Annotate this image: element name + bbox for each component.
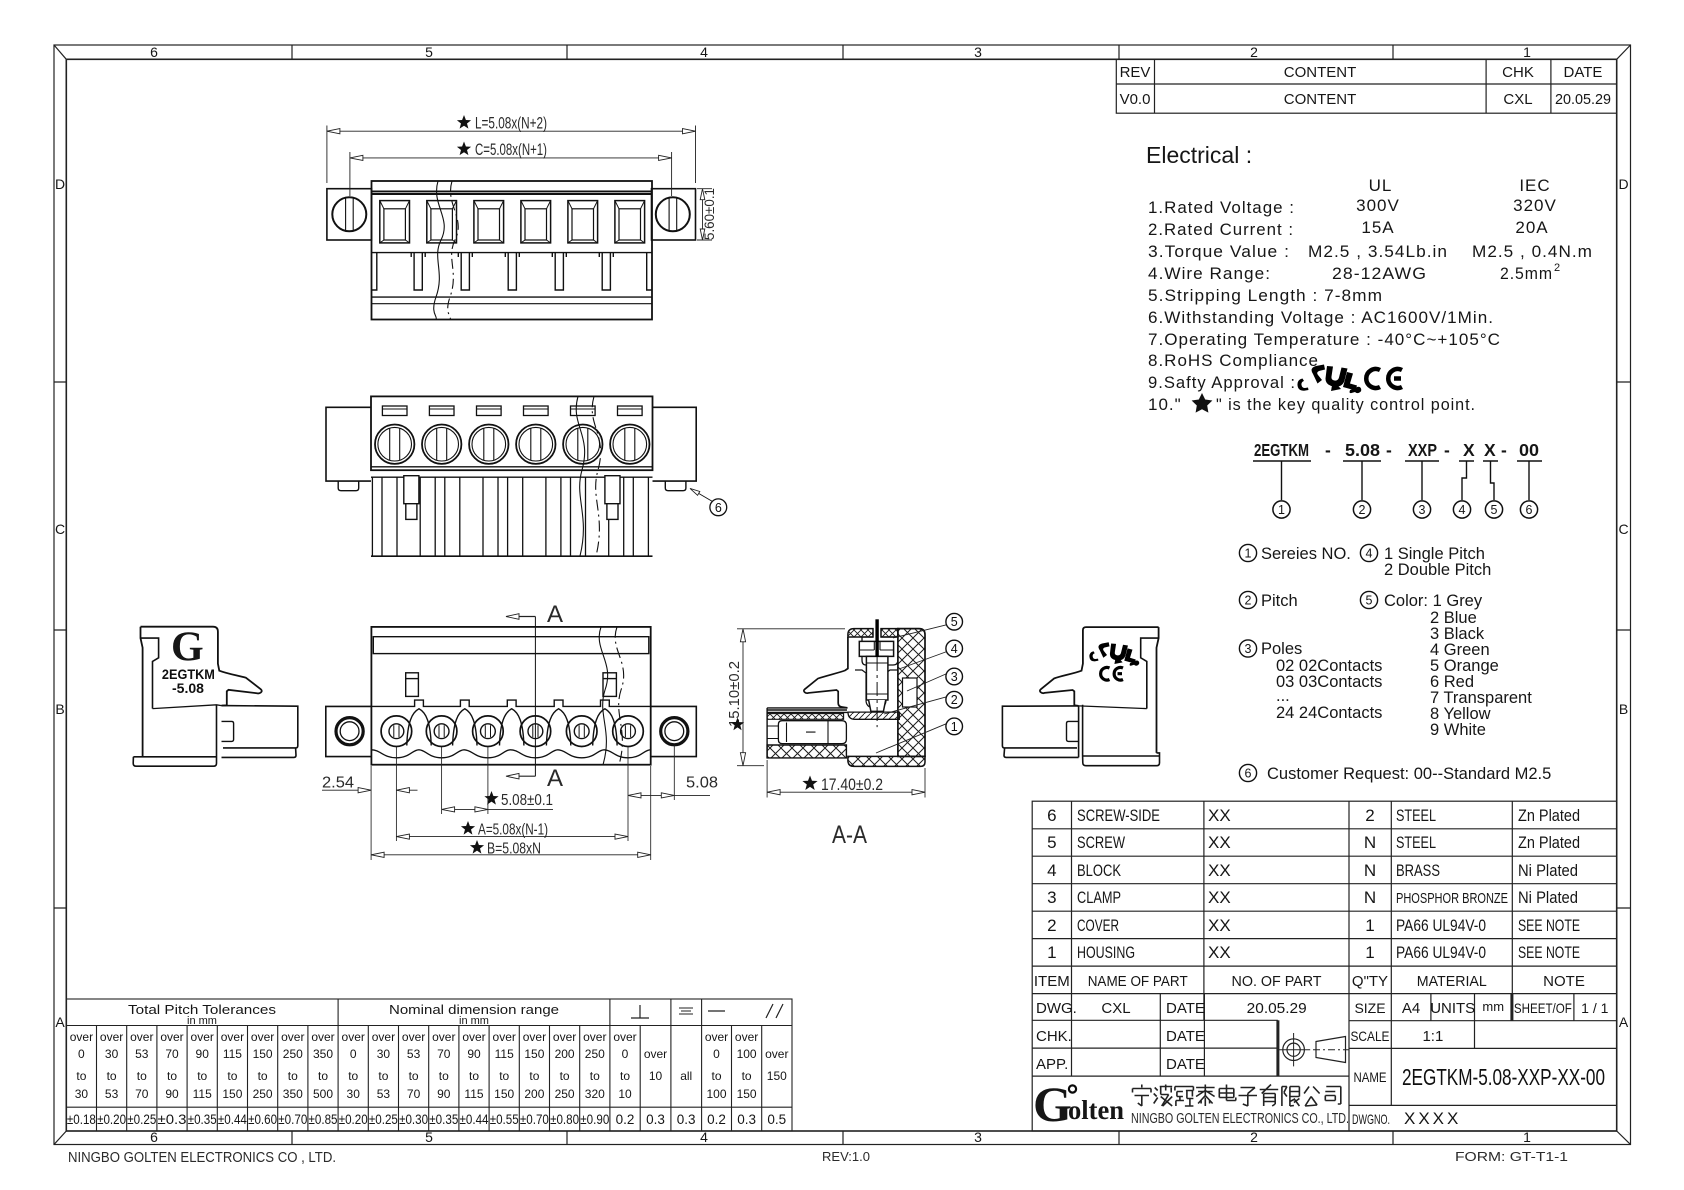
svg-text:over: over	[221, 1030, 244, 1044]
svg-text:NOTE: NOTE	[1543, 973, 1585, 990]
svg-text:320V: 320V	[1513, 196, 1557, 215]
svg-text:5: 5	[951, 615, 958, 629]
svg-text:PA66 UL94V-0: PA66 UL94V-0	[1396, 916, 1486, 935]
svg-text:over: over	[523, 1030, 546, 1044]
svg-text:mm: mm	[1482, 999, 1504, 1014]
svg-text:G: G	[1033, 1076, 1072, 1132]
svg-text:over: over	[130, 1030, 153, 1044]
svg-text:C: C	[55, 521, 65, 537]
svg-text:DWG.: DWG.	[1036, 1000, 1077, 1017]
svg-text:CLAMP: CLAMP	[1077, 888, 1121, 907]
svg-text:150: 150	[253, 1047, 273, 1061]
svg-text:150: 150	[494, 1087, 514, 1101]
svg-text:B: B	[55, 701, 64, 717]
svg-text:over: over	[583, 1030, 606, 1044]
svg-text:15A: 15A	[1361, 218, 1394, 237]
svg-text:2: 2	[1359, 503, 1366, 517]
svg-text:DWGNO.: DWGNO.	[1352, 1111, 1390, 1127]
svg-text:1: 1	[1365, 943, 1374, 962]
svg-text:to: to	[529, 1069, 539, 1083]
svg-text:C: C	[1618, 521, 1628, 537]
svg-text:±0.3: ±0.3	[158, 1112, 187, 1127]
svg-text:over: over	[342, 1030, 365, 1044]
svg-text:250: 250	[283, 1047, 303, 1061]
svg-text:10: 10	[649, 1069, 663, 1083]
svg-text:53: 53	[377, 1087, 391, 1101]
svg-text:0.5: 0.5	[767, 1112, 786, 1127]
svg-text:3: 3	[1245, 642, 1252, 656]
svg-text:200: 200	[555, 1047, 575, 1061]
svg-text:1: 1	[1523, 44, 1531, 60]
svg-text:XX: XX	[1208, 916, 1231, 935]
svg-text:X: X	[1463, 440, 1475, 460]
svg-text:5: 5	[1366, 594, 1373, 608]
svg-text:0: 0	[713, 1047, 720, 1061]
svg-text:±0.85: ±0.85	[309, 1112, 338, 1127]
svg-text:A=5.08x(N-1): A=5.08x(N-1)	[478, 822, 548, 839]
svg-text:over: over	[100, 1030, 123, 1044]
svg-text:-5.08: -5.08	[172, 681, 205, 696]
svg-text:NAME OF PART: NAME OF PART	[1088, 973, 1188, 990]
svg-text:Q"TY: Q"TY	[1352, 973, 1388, 990]
svg-text:XX: XX	[1208, 806, 1231, 825]
svg-text:4: 4	[1366, 547, 1373, 561]
svg-text:6: 6	[1245, 767, 1252, 781]
svg-text:CONTENT: CONTENT	[1284, 64, 1357, 81]
svg-text:over: over	[553, 1030, 576, 1044]
svg-text:±0.44: ±0.44	[460, 1112, 489, 1127]
svg-text:100: 100	[706, 1087, 726, 1101]
svg-text:0.3: 0.3	[737, 1112, 756, 1127]
svg-text:-: -	[1501, 440, 1507, 460]
svg-text:-: -	[1325, 440, 1331, 460]
svg-text:1: 1	[1365, 916, 1374, 935]
svg-text:2EGTKM-5.08-XXP-XX-00: 2EGTKM-5.08-XXP-XX-00	[1402, 1064, 1605, 1090]
svg-text:XX: XX	[1208, 833, 1231, 852]
svg-text:28-12AWG: 28-12AWG	[1332, 264, 1427, 283]
svg-text:SEE NOTE: SEE NOTE	[1518, 943, 1580, 962]
svg-text:M2.5 , 3.54Lb.in: M2.5 , 3.54Lb.in	[1308, 242, 1448, 261]
svg-text:SCREW: SCREW	[1077, 833, 1125, 852]
svg-text:±0.60: ±0.60	[248, 1112, 277, 1127]
svg-text:0.3: 0.3	[646, 1112, 665, 1127]
svg-text:±0.35: ±0.35	[429, 1112, 458, 1127]
svg-text:BLOCK: BLOCK	[1077, 861, 1121, 880]
svg-text:±0.80: ±0.80	[550, 1112, 579, 1127]
svg-text:3: 3	[974, 44, 982, 60]
svg-text:20A: 20A	[1515, 218, 1548, 237]
svg-text:to: to	[227, 1069, 237, 1083]
svg-text:5: 5	[1491, 503, 1498, 517]
svg-text:to: to	[742, 1069, 752, 1083]
svg-text:5: 5	[1047, 833, 1056, 852]
svg-text:NINGBO GOLTEN ELECTRONICS CO ,: NINGBO GOLTEN ELECTRONICS CO , LTD.	[68, 1149, 336, 1166]
svg-text:90: 90	[196, 1047, 210, 1061]
svg-text:0: 0	[350, 1047, 357, 1061]
svg-text:4: 4	[951, 642, 958, 656]
svg-text:Customer Request: 00--Standard: Customer Request: 00--Standard M2.5	[1267, 765, 1551, 783]
svg-text:24 24Contacts: 24 24Contacts	[1276, 704, 1382, 722]
svg-text:COVER: COVER	[1077, 916, 1119, 935]
svg-text:N: N	[1364, 861, 1376, 880]
svg-text:to: to	[560, 1069, 570, 1083]
svg-text:2: 2	[1554, 262, 1561, 274]
svg-text:150: 150	[222, 1087, 242, 1101]
svg-text:over: over	[432, 1030, 455, 1044]
svg-text:PA66 UL94V-0: PA66 UL94V-0	[1396, 943, 1486, 962]
svg-text:70: 70	[437, 1047, 451, 1061]
svg-text:XX: XX	[1208, 888, 1231, 907]
svg-text:6: 6	[150, 44, 158, 60]
svg-text:115: 115	[495, 1047, 514, 1061]
svg-text:D: D	[55, 176, 65, 192]
svg-text:STEEL: STEEL	[1396, 806, 1436, 825]
svg-text:115: 115	[193, 1087, 212, 1101]
svg-text:APP.: APP.	[1036, 1056, 1068, 1073]
svg-text:3: 3	[1419, 503, 1426, 517]
svg-text:B: B	[1619, 701, 1628, 717]
svg-text:9.Safty Approval :: 9.Safty Approval :	[1148, 373, 1296, 392]
svg-text:2.54: 2.54	[322, 775, 354, 792]
svg-text:CHK.: CHK.	[1036, 1028, 1072, 1045]
svg-text:-: -	[1386, 440, 1392, 460]
svg-text:350: 350	[283, 1087, 303, 1101]
svg-text:to: to	[620, 1069, 630, 1083]
svg-text:30: 30	[75, 1087, 89, 1101]
svg-text:6.Withstanding Voltage : AC160: 6.Withstanding Voltage : AC1600V/1Min.	[1148, 308, 1494, 327]
svg-text:V0.0: V0.0	[1120, 91, 1151, 108]
svg-text:300V: 300V	[1356, 196, 1400, 215]
svg-text:20.05.29: 20.05.29	[1247, 1000, 1307, 1017]
svg-text:to: to	[439, 1069, 449, 1083]
svg-text:±0.25: ±0.25	[127, 1112, 156, 1127]
svg-text:70: 70	[135, 1087, 149, 1101]
svg-text:90: 90	[437, 1087, 451, 1101]
svg-text:±0.18: ±0.18	[67, 1112, 96, 1127]
svg-text:1.Rated Voltage :: 1.Rated Voltage :	[1148, 198, 1295, 217]
svg-text:N: N	[1364, 833, 1376, 852]
svg-text:N: N	[1364, 888, 1376, 907]
svg-text:HOUSING: HOUSING	[1077, 943, 1135, 962]
svg-text:C=5.08x(N+1): C=5.08x(N+1)	[475, 141, 547, 159]
svg-text:0.2: 0.2	[707, 1112, 726, 1127]
svg-text:±0.70: ±0.70	[278, 1112, 307, 1127]
svg-text:30: 30	[377, 1047, 391, 1061]
svg-text:ITEM: ITEM	[1034, 973, 1070, 990]
svg-text:0: 0	[622, 1047, 629, 1061]
svg-text:NINGBO GOLTEN ELECTRONICS CO.,: NINGBO GOLTEN ELECTRONICS CO., LTD.	[1131, 1111, 1349, 1127]
svg-text:2: 2	[951, 693, 958, 707]
svg-text:to: to	[409, 1069, 419, 1083]
svg-text:UL: UL	[1369, 176, 1393, 195]
svg-text:M2.5 , 0.4N.m: M2.5 , 0.4N.m	[1472, 242, 1593, 261]
svg-text:4: 4	[1459, 503, 1466, 517]
svg-text:250: 250	[585, 1047, 605, 1061]
svg-text:2 Double Pitch: 2 Double Pitch	[1384, 561, 1491, 579]
svg-text:Zn Plated: Zn Plated	[1518, 833, 1580, 852]
svg-text:BRASS: BRASS	[1396, 861, 1440, 880]
svg-text:5.08: 5.08	[686, 775, 718, 792]
svg-text:DATE: DATE	[1166, 1056, 1205, 1073]
svg-text:over: over	[402, 1030, 425, 1044]
svg-text:MATERIAL: MATERIAL	[1417, 973, 1487, 990]
svg-text:53: 53	[105, 1087, 119, 1101]
svg-text:to: to	[318, 1069, 328, 1083]
svg-text:CXL: CXL	[1101, 1000, 1130, 1017]
svg-text:over: over	[281, 1030, 304, 1044]
svg-text:over: over	[160, 1030, 183, 1044]
svg-text:CONTENT: CONTENT	[1284, 91, 1357, 108]
svg-text:0.3: 0.3	[677, 1112, 696, 1127]
svg-text:over: over	[311, 1030, 334, 1044]
svg-text:...: ...	[1276, 687, 1290, 705]
svg-text:200: 200	[524, 1087, 544, 1101]
svg-text:115: 115	[464, 1087, 483, 1101]
svg-text:150: 150	[737, 1087, 757, 1101]
svg-text:in mm: in mm	[187, 1015, 217, 1027]
svg-text:to: to	[378, 1069, 388, 1083]
svg-text:2EGTKM: 2EGTKM	[1254, 440, 1309, 460]
svg-text:4: 4	[700, 44, 708, 60]
svg-text:STEEL: STEEL	[1396, 833, 1436, 852]
svg-text:CHK: CHK	[1502, 64, 1534, 81]
svg-text:to: to	[469, 1069, 479, 1083]
svg-text:1 / 1: 1 / 1	[1581, 1000, 1608, 1016]
svg-text:6: 6	[715, 501, 722, 515]
svg-text:90: 90	[165, 1087, 179, 1101]
svg-text:DATE: DATE	[1166, 1028, 1205, 1045]
svg-text:500: 500	[313, 1087, 333, 1101]
svg-text:-: -	[1444, 440, 1450, 460]
svg-text:to: to	[258, 1069, 268, 1083]
svg-text:250: 250	[555, 1087, 575, 1101]
svg-text:XXXX: XXXX	[1404, 1109, 1461, 1128]
svg-text:4.Wire Range:: 4.Wire Range:	[1148, 264, 1271, 283]
svg-text:17.40±0.2: 17.40±0.2	[821, 776, 883, 794]
svg-text:4: 4	[1047, 861, 1056, 880]
svg-text:over: over	[372, 1030, 395, 1044]
svg-text:over: over	[705, 1030, 728, 1044]
svg-text:UNITS: UNITS	[1430, 1000, 1475, 1017]
svg-text:D: D	[1618, 176, 1628, 192]
svg-text:to: to	[711, 1069, 721, 1083]
svg-text:6: 6	[1047, 806, 1056, 825]
svg-text:A: A	[55, 1014, 65, 1030]
svg-text:90: 90	[467, 1047, 481, 1061]
svg-text:over: over	[462, 1030, 485, 1044]
svg-text:30: 30	[105, 1047, 119, 1061]
svg-text:Poles: Poles	[1261, 640, 1302, 658]
svg-text:in mm: in mm	[459, 1015, 489, 1027]
svg-text:X: X	[1484, 440, 1496, 460]
svg-text:A4: A4	[1402, 1000, 1420, 1017]
svg-text:REV:1.0: REV:1.0	[822, 1149, 870, 1164]
svg-text:30: 30	[347, 1087, 361, 1101]
svg-text:±0.55: ±0.55	[490, 1112, 519, 1127]
svg-text:G: G	[171, 625, 204, 671]
svg-text:over: over	[765, 1047, 788, 1061]
svg-text:NAME: NAME	[1354, 1069, 1387, 1085]
svg-text:over: over	[613, 1030, 636, 1044]
svg-text:70: 70	[407, 1087, 421, 1101]
svg-text:SIZE: SIZE	[1354, 1000, 1385, 1016]
svg-text:L=5.08x(N+2): L=5.08x(N+2)	[475, 115, 547, 133]
svg-text:1: 1	[951, 720, 958, 734]
svg-text:70: 70	[165, 1047, 179, 1061]
svg-text:2: 2	[1047, 916, 1056, 935]
svg-text:to: to	[137, 1069, 147, 1083]
svg-text:over: over	[644, 1047, 667, 1061]
svg-text:REV: REV	[1120, 64, 1151, 81]
svg-text:over: over	[70, 1030, 93, 1044]
svg-text:0: 0	[78, 1047, 85, 1061]
svg-text:all: all	[680, 1069, 692, 1083]
svg-text:NO. OF PART: NO. OF PART	[1232, 973, 1322, 990]
svg-text:over: over	[735, 1030, 758, 1044]
svg-text:Zn Plated: Zn Plated	[1518, 806, 1580, 825]
svg-text:±0.25: ±0.25	[369, 1112, 398, 1127]
svg-text:Pitch: Pitch	[1261, 592, 1298, 610]
svg-text:320: 320	[585, 1087, 605, 1101]
svg-text:2.Rated Current :: 2.Rated Current :	[1148, 220, 1294, 239]
svg-text:DATE: DATE	[1564, 64, 1603, 81]
svg-text:±0.20: ±0.20	[339, 1112, 368, 1127]
svg-text:SHEET/OF: SHEET/OF	[1514, 1000, 1572, 1016]
svg-text:150: 150	[524, 1047, 544, 1061]
svg-text:DATE: DATE	[1166, 1000, 1205, 1017]
svg-text:CXL: CXL	[1503, 91, 1532, 108]
svg-text:±0.90: ±0.90	[580, 1112, 609, 1127]
svg-text:3.Torque Value :: 3.Torque Value :	[1148, 242, 1290, 261]
svg-text:XX: XX	[1208, 861, 1231, 880]
svg-text:2: 2	[1245, 594, 1252, 608]
svg-text:Sereies NO.: Sereies NO.	[1261, 545, 1351, 563]
svg-text:00: 00	[1519, 440, 1539, 460]
svg-text:" is the key quality control p: " is the key quality control point.	[1216, 395, 1476, 414]
svg-text:100: 100	[737, 1047, 757, 1061]
svg-text:9 White: 9 White	[1430, 721, 1486, 739]
svg-text:Ni Plated: Ni Plated	[1518, 888, 1578, 907]
svg-text:250: 250	[253, 1087, 273, 1101]
svg-text:1:1: 1:1	[1422, 1028, 1443, 1045]
svg-text:Electrical :: Electrical :	[1146, 142, 1252, 168]
svg-text:±0.20: ±0.20	[97, 1112, 126, 1127]
svg-text:2: 2	[1250, 44, 1258, 60]
svg-text:±0.30: ±0.30	[399, 1112, 428, 1127]
svg-text:5.08: 5.08	[1345, 440, 1380, 460]
svg-text:1: 1	[1278, 503, 1285, 517]
svg-text:A: A	[547, 765, 563, 792]
svg-text:5.08±0.1: 5.08±0.1	[501, 792, 553, 809]
svg-text:XX: XX	[1208, 943, 1231, 962]
svg-text:FORM: GT-T1-1: FORM: GT-T1-1	[1455, 1149, 1568, 1164]
svg-text:5.Stripping Length : 7-8mm: 5.Stripping Length : 7-8mm	[1148, 286, 1383, 305]
svg-text:5.60±0.1: 5.60±0.1	[701, 188, 717, 240]
svg-text:A: A	[1619, 1014, 1629, 1030]
svg-text:to: to	[76, 1069, 86, 1083]
svg-text:A: A	[547, 601, 563, 628]
svg-text:20.05.29: 20.05.29	[1555, 91, 1611, 108]
svg-text:03 03Contacts: 03 03Contacts	[1276, 673, 1382, 691]
svg-text:to: to	[288, 1069, 298, 1083]
svg-text:8.RoHS Compliance: 8.RoHS Compliance	[1148, 351, 1319, 370]
svg-text:3: 3	[951, 670, 958, 684]
svg-text:Ni Plated: Ni Plated	[1518, 861, 1578, 880]
svg-text:53: 53	[407, 1047, 421, 1061]
svg-text:over: over	[493, 1030, 516, 1044]
svg-text:10.": 10."	[1148, 395, 1182, 414]
svg-text:to: to	[499, 1069, 509, 1083]
svg-text:A-A: A-A	[832, 821, 867, 849]
svg-text:10: 10	[618, 1087, 632, 1101]
svg-text:to: to	[348, 1069, 358, 1083]
svg-text:PHOSPHOR BRONZE: PHOSPHOR BRONZE	[1396, 890, 1508, 907]
svg-text:IEC: IEC	[1519, 176, 1550, 195]
svg-text:6: 6	[1526, 503, 1533, 517]
svg-text:±0.44: ±0.44	[218, 1112, 247, 1127]
svg-text:to: to	[107, 1069, 117, 1083]
svg-text:±0.35: ±0.35	[188, 1112, 217, 1127]
svg-text:3: 3	[1047, 888, 1056, 907]
svg-text:to: to	[590, 1069, 600, 1083]
svg-text:1: 1	[1047, 943, 1056, 962]
svg-text:1: 1	[1245, 547, 1252, 561]
svg-text:53: 53	[135, 1047, 149, 1061]
svg-text:115: 115	[223, 1047, 242, 1061]
svg-text:5: 5	[425, 44, 433, 60]
svg-text:2: 2	[1365, 806, 1374, 825]
svg-text:over: over	[251, 1030, 274, 1044]
svg-text:15.10±0.2: 15.10±0.2	[726, 661, 743, 727]
svg-text:2EGTKM: 2EGTKM	[162, 667, 215, 682]
svg-text:2.5mm: 2.5mm	[1500, 264, 1553, 283]
svg-text:olten: olten	[1068, 1095, 1124, 1125]
svg-text:to: to	[197, 1069, 207, 1083]
svg-text:XXP: XXP	[1408, 440, 1437, 460]
svg-text:350: 350	[313, 1047, 333, 1061]
svg-text:3: 3	[974, 1129, 982, 1145]
svg-text:SCREW-SIDE: SCREW-SIDE	[1077, 806, 1160, 825]
svg-text:SCALE: SCALE	[1351, 1028, 1390, 1044]
svg-text:Color: 1 Grey: Color: 1 Grey	[1384, 592, 1483, 610]
svg-text:150: 150	[767, 1069, 787, 1083]
svg-text:SEE NOTE: SEE NOTE	[1518, 916, 1580, 935]
svg-text:7.Operating Temperature : -40°: 7.Operating Temperature : -40°C~+105°C	[1148, 330, 1501, 349]
svg-text:±0.70: ±0.70	[520, 1112, 549, 1127]
svg-text:0.2: 0.2	[616, 1112, 635, 1127]
svg-text:over: over	[191, 1030, 214, 1044]
svg-text:to: to	[167, 1069, 177, 1083]
